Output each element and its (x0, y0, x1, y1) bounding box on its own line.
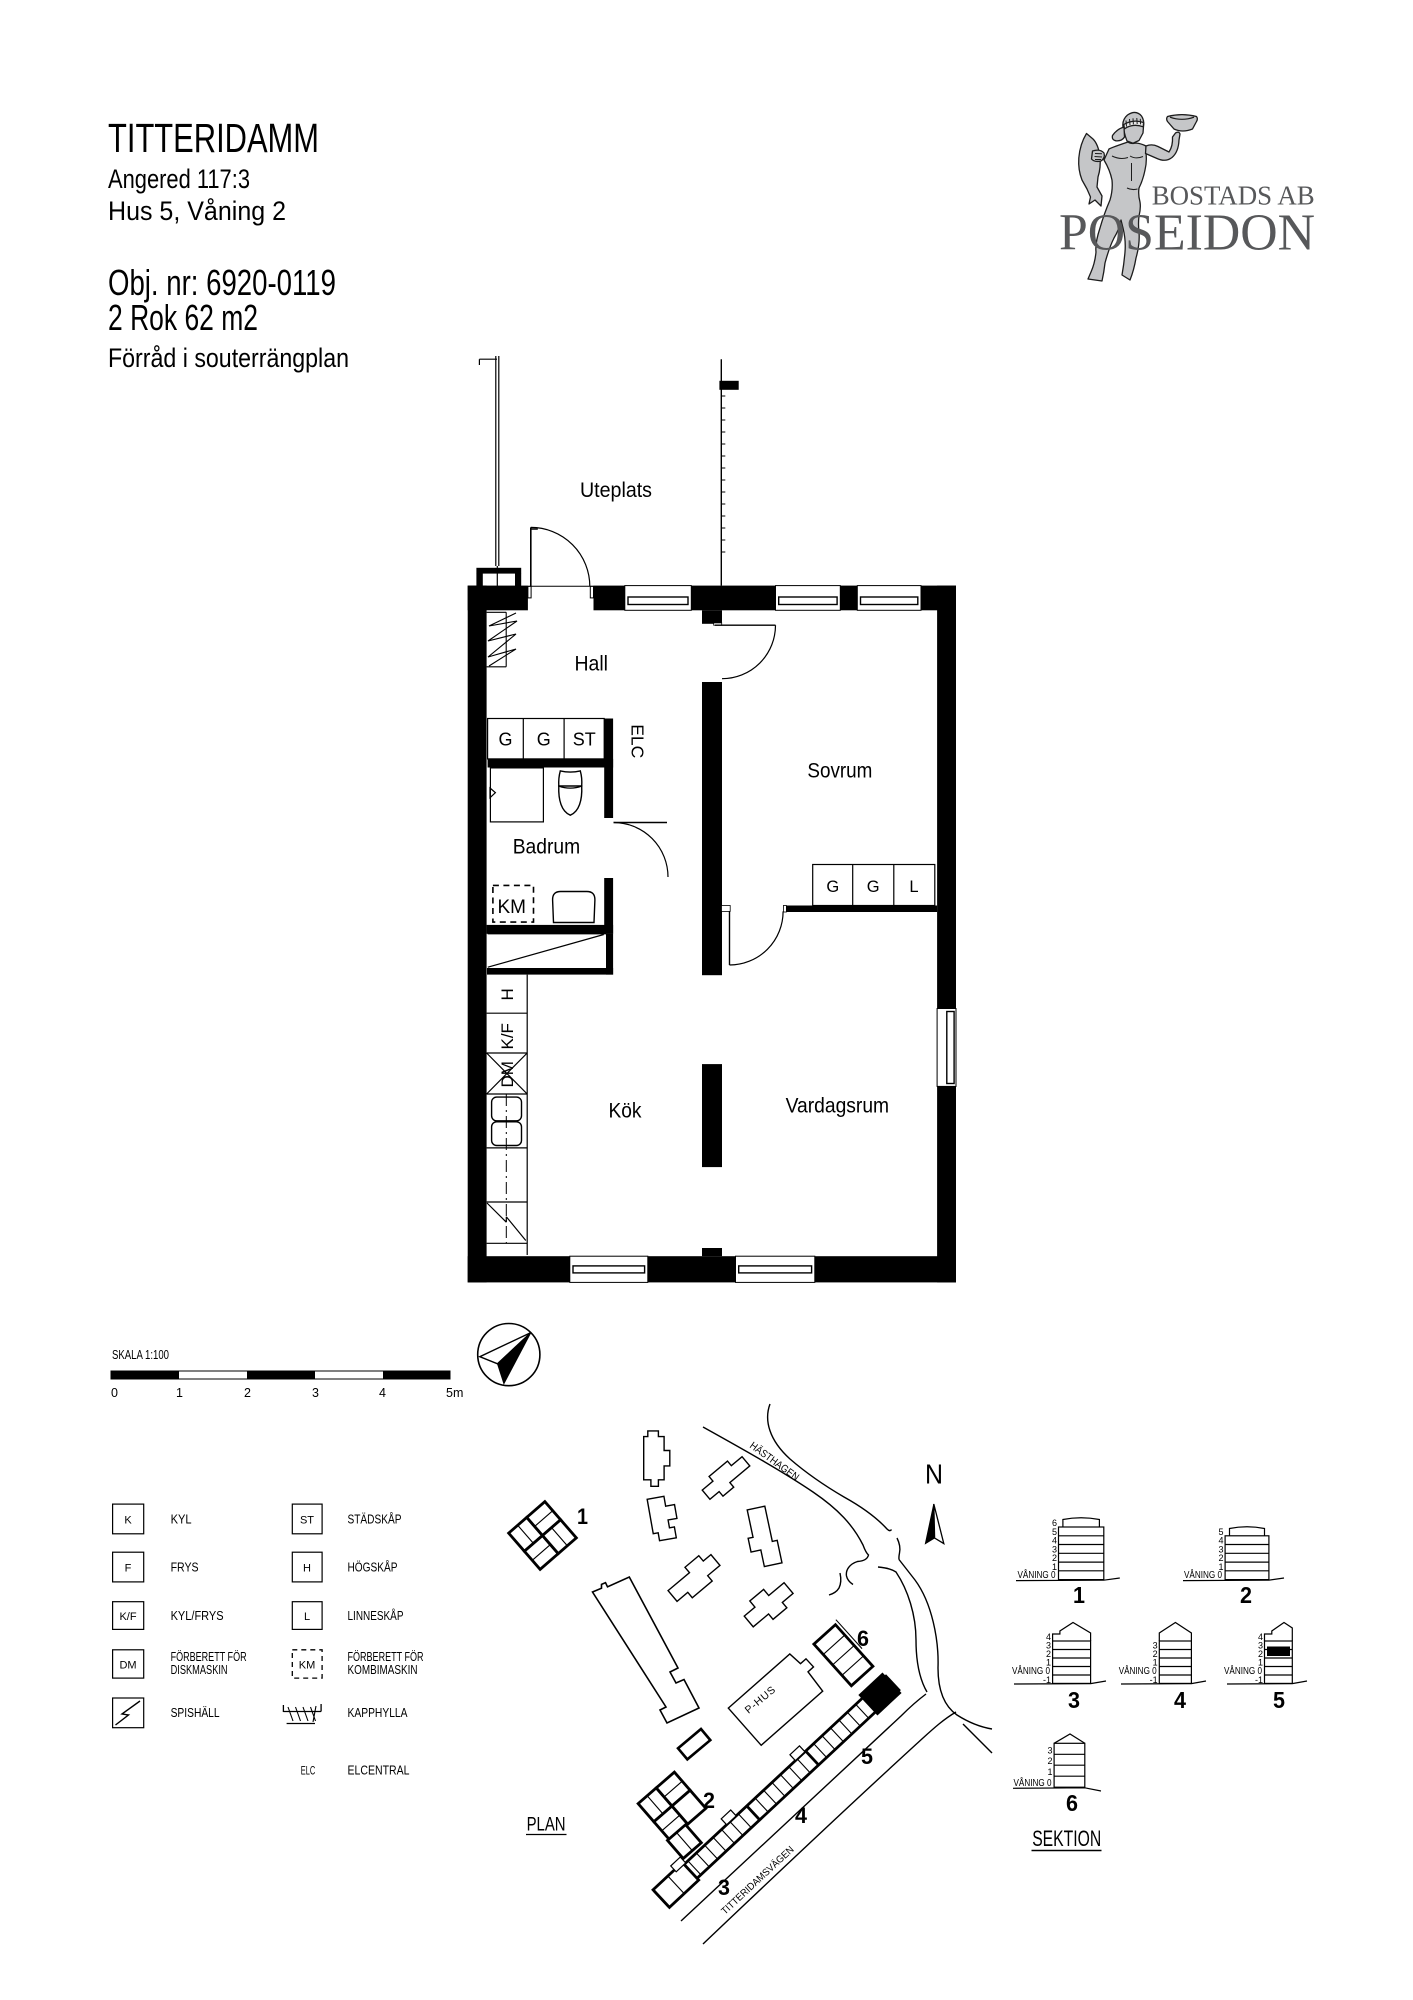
svg-text:1: 1 (1073, 1582, 1085, 1608)
svg-text:ELC: ELC (301, 1765, 316, 1777)
svg-text:POSEIDON: POSEIDON (1059, 205, 1315, 262)
svg-text:SPISHÄLL: SPISHÄLL (171, 1705, 220, 1720)
svg-text:2: 2 (703, 1788, 715, 1813)
svg-text:ST: ST (573, 730, 596, 750)
svg-text:2 Rok 62 m2: 2 Rok 62 m2 (108, 297, 258, 338)
svg-text:3: 3 (1047, 1745, 1052, 1755)
svg-text:Badrum: Badrum (513, 836, 581, 859)
svg-text:K/F: K/F (498, 1023, 517, 1049)
svg-text:VÅNING 0: VÅNING 0 (1119, 1664, 1157, 1677)
svg-text:DISKMASKIN: DISKMASKIN (171, 1662, 228, 1677)
svg-text:VÅNING 0: VÅNING 0 (1018, 1568, 1056, 1581)
svg-text:0: 0 (111, 1386, 118, 1400)
svg-text:VÅNING 0: VÅNING 0 (1184, 1568, 1222, 1581)
svg-text:6: 6 (1066, 1790, 1078, 1816)
svg-text:G: G (498, 730, 512, 750)
svg-text:LINNESKÅP: LINNESKÅP (348, 1608, 404, 1623)
svg-text:1: 1 (176, 1386, 183, 1400)
svg-text:G: G (826, 878, 839, 896)
svg-text:4: 4 (795, 1803, 808, 1828)
svg-text:Förråd i souterrängplan: Förråd i souterrängplan (108, 343, 349, 373)
svg-text:H: H (498, 988, 517, 1000)
svg-text:L: L (304, 1611, 310, 1623)
svg-text:2: 2 (244, 1386, 251, 1400)
svg-text:FRYS: FRYS (171, 1560, 199, 1575)
svg-text:KM: KM (299, 1660, 316, 1672)
svg-text:STÄDSKÅP: STÄDSKÅP (348, 1512, 402, 1527)
svg-text:N: N (925, 1459, 943, 1490)
svg-text:5: 5 (1273, 1687, 1285, 1713)
svg-text:K/F: K/F (119, 1611, 136, 1623)
svg-text:KYL: KYL (171, 1512, 192, 1527)
svg-text:SKALA 1:100: SKALA 1:100 (112, 1348, 169, 1362)
svg-text:KAPPHYLLA: KAPPHYLLA (348, 1705, 408, 1720)
svg-text:G: G (867, 878, 880, 896)
svg-text:H: H (303, 1563, 311, 1575)
svg-text:4: 4 (1174, 1687, 1186, 1713)
svg-text:5m: 5m (446, 1386, 463, 1400)
svg-text:Kök: Kök (609, 1100, 642, 1123)
svg-text:3: 3 (718, 1875, 730, 1900)
svg-text:Angered 117:3: Angered 117:3 (108, 164, 250, 194)
svg-text:Sovrum: Sovrum (807, 760, 872, 783)
svg-text:HÖGSKÅP: HÖGSKÅP (348, 1560, 398, 1575)
svg-text:ST: ST (300, 1515, 314, 1527)
svg-text:ELCENTRAL: ELCENTRAL (348, 1762, 410, 1777)
svg-text:6: 6 (857, 1626, 869, 1651)
svg-text:3: 3 (1068, 1687, 1080, 1713)
svg-text:VÅNING 0: VÅNING 0 (1014, 1776, 1052, 1789)
svg-text:KM: KM (498, 897, 527, 918)
svg-text:DM: DM (119, 1660, 136, 1672)
svg-text:Hall: Hall (575, 653, 609, 676)
svg-text:DM: DM (498, 1061, 517, 1087)
svg-text:KYL/FRYS: KYL/FRYS (171, 1608, 224, 1623)
svg-text:TITTERIDAMM: TITTERIDAMM (108, 115, 319, 161)
svg-text:K: K (124, 1515, 132, 1527)
svg-text:ELC: ELC (628, 724, 648, 758)
svg-text:SEKTION: SEKTION (1032, 1826, 1101, 1851)
svg-text:Hus 5, Våning 2: Hus 5, Våning 2 (108, 196, 286, 226)
svg-text:Uteplats: Uteplats (580, 479, 652, 502)
svg-text:VÅNING 0: VÅNING 0 (1012, 1664, 1050, 1677)
svg-text:F: F (125, 1563, 132, 1575)
svg-text:Vardagsrum: Vardagsrum (786, 1095, 890, 1118)
svg-text:5: 5 (861, 1744, 873, 1769)
svg-text:4: 4 (379, 1386, 386, 1400)
svg-text:3: 3 (312, 1386, 319, 1400)
svg-text:1: 1 (577, 1504, 588, 1529)
svg-text:G: G (537, 730, 551, 750)
svg-text:KOMBIMASKIN: KOMBIMASKIN (348, 1662, 418, 1677)
svg-text:L: L (909, 878, 918, 896)
svg-text:PLAN: PLAN (527, 1815, 566, 1836)
svg-text:2: 2 (1240, 1582, 1252, 1608)
svg-text:2: 2 (1047, 1756, 1052, 1766)
svg-text:1: 1 (1047, 1767, 1052, 1777)
svg-text:VÅNING 0: VÅNING 0 (1224, 1664, 1262, 1677)
